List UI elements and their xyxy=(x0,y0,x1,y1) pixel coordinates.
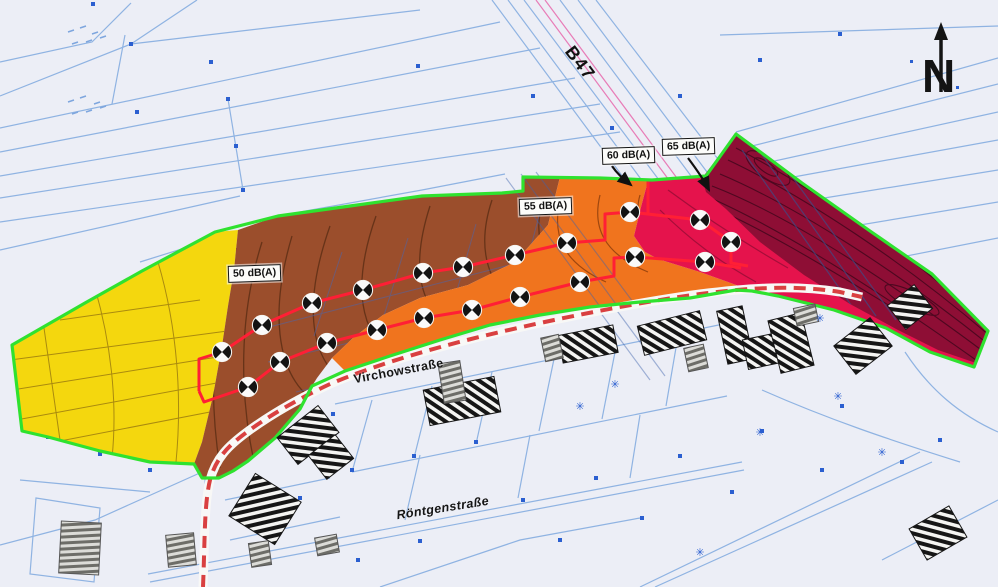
measurement-point-marker xyxy=(413,263,432,282)
tree-icon: ✳ xyxy=(815,313,824,325)
north-arrow-letter: N xyxy=(922,50,955,102)
measurement-point-marker xyxy=(367,320,386,339)
measurement-point-marker xyxy=(462,300,481,319)
measurement-point-marker xyxy=(690,210,709,229)
measurement-point-marker xyxy=(505,245,524,264)
measurement-point-marker xyxy=(510,287,529,306)
outbuilding xyxy=(248,541,271,568)
measurement-point-marker xyxy=(721,232,740,251)
tree-icon: ✳ xyxy=(575,401,584,413)
measurement-point-marker xyxy=(302,293,321,312)
outbuilding xyxy=(315,534,340,556)
outbuilding xyxy=(59,521,102,575)
measurement-point-marker xyxy=(353,280,372,299)
tree-icon: ✳ xyxy=(877,447,886,459)
measurement-point-marker xyxy=(453,257,472,276)
tree-icon: ✳ xyxy=(755,427,764,439)
noise-label-60db: 60 dB(A) xyxy=(602,146,656,165)
tree-icon: ✳ xyxy=(695,547,704,559)
measurement-point-marker xyxy=(270,352,289,371)
measurement-point-marker xyxy=(557,233,576,252)
measurement-point-marker xyxy=(317,333,336,352)
noise-label-50db: 50 dB(A) xyxy=(228,264,282,283)
measurement-point-marker xyxy=(414,308,433,327)
measurement-point-marker xyxy=(212,342,231,361)
noise-label-55db: 55 dB(A) xyxy=(519,197,573,216)
measurement-point-marker xyxy=(570,272,589,291)
noise-map-site-plan: ✳ ✳ ✳ ✳ ✳ ✳ ✳ N 50 dB(A) 55 dB(A) 60 dB(… xyxy=(0,0,998,587)
noise-label-65db: 65 dB(A) xyxy=(662,137,716,156)
measurement-point-marker xyxy=(238,377,257,396)
measurement-point-marker xyxy=(620,202,639,221)
measurement-point-marker xyxy=(695,252,714,271)
site-plan-canvas: ✳ ✳ ✳ ✳ ✳ ✳ ✳ N xyxy=(0,0,998,587)
measurement-point-marker xyxy=(625,247,644,266)
measurement-point-marker xyxy=(252,315,271,334)
outbuilding xyxy=(684,344,709,372)
tree-icon: ✳ xyxy=(833,391,842,403)
tree-icon: ✳ xyxy=(610,379,619,391)
outbuilding xyxy=(166,533,197,567)
